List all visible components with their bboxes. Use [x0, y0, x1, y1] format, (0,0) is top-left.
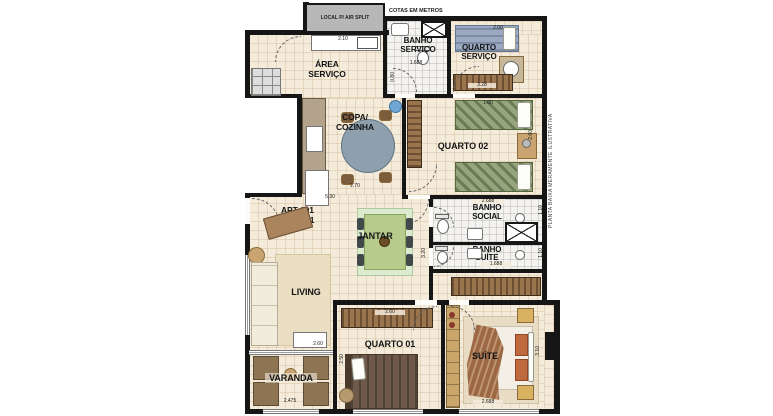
dim-label: 2.70: [340, 184, 370, 189]
shaft-box: [505, 222, 538, 243]
wall: [542, 16, 547, 304]
dim-label: 2.60: [303, 342, 333, 347]
pedestal-sink: [515, 250, 525, 260]
dim-label: 2.688: [473, 400, 503, 405]
door-gap: [415, 300, 437, 305]
wall: [429, 269, 547, 273]
air-split-box: LOCAL P/ AIR SPLIT: [305, 3, 385, 33]
suite-cushion: [515, 334, 528, 356]
dim-label: 1.688: [401, 61, 431, 66]
nightstand: [517, 308, 534, 323]
pouf: [339, 388, 354, 403]
wall: [385, 16, 547, 21]
door-gap: [429, 248, 433, 266]
washer: [357, 37, 378, 49]
bed-pillow: [517, 164, 531, 190]
room-label-quarto01: QUARTO 01: [350, 339, 430, 349]
dim-label: 3.10: [536, 346, 541, 356]
dim-label: 1.10: [539, 205, 544, 215]
nightstand: [517, 385, 534, 400]
bed-pillow: [351, 357, 366, 380]
window-living-varanda: [249, 350, 333, 355]
cooktop: [306, 126, 323, 152]
bed-pillow: [517, 102, 531, 128]
wall: [441, 300, 445, 410]
window: [459, 409, 539, 414]
dim-label: 1.00: [473, 101, 503, 106]
room-label-suite: SUÍTE: [460, 351, 510, 361]
chair: [357, 254, 364, 266]
dim-label: 1.688: [481, 262, 511, 267]
chair: [379, 172, 392, 183]
air-split-label: LOCAL P/ AIR SPLIT: [321, 15, 370, 21]
dim-label: 2.475: [275, 399, 305, 404]
room-label-living: LIVING: [281, 287, 331, 297]
chair: [406, 254, 413, 266]
room-label-quarto02: QUARTO 02: [423, 141, 503, 151]
lamp: [522, 139, 531, 148]
varanda-chair: [303, 382, 329, 406]
sink: [391, 23, 409, 36]
cotas-note: COTAS EM METROS: [389, 8, 443, 14]
room-label-area-servico: ÁREA SERVIÇO: [297, 60, 357, 79]
room-label-varanda: VARANDA: [265, 373, 317, 383]
dim-label: 2.60: [529, 130, 534, 140]
chair: [406, 236, 413, 248]
suite-cushion: [515, 359, 528, 381]
bed-pillow: [528, 332, 534, 382]
sofa: [251, 262, 278, 346]
water-cooler: [389, 100, 402, 113]
dim-label: 2.60: [375, 310, 405, 315]
dim-label: 2.50: [340, 354, 345, 364]
door-gap: [395, 94, 415, 98]
dim-label: 3.20: [422, 248, 427, 258]
laundry-tank: [251, 68, 281, 96]
room-label-quarto-servico: QUARTO SERVIÇO: [452, 44, 506, 62]
wall: [447, 16, 451, 98]
floor-plan: LOCAL P/ AIR SPLIT COTAS EM METROS 2.10 …: [245, 2, 560, 414]
sink: [467, 248, 482, 259]
sink: [467, 228, 483, 240]
chair: [357, 218, 364, 230]
floor-plan-image: LOCAL P/ AIR SPLIT COTAS EM METROS 2.10 …: [0, 0, 773, 416]
room-label-banho-social: BANHO SOCIAL: [457, 204, 517, 222]
door-gap: [429, 207, 433, 227]
window: [245, 255, 250, 335]
dim-label: 2.10: [329, 37, 357, 42]
dim-label: 5.30: [315, 195, 345, 200]
dim-label: 2.00: [483, 26, 513, 31]
dim-label: 1.10: [539, 248, 544, 258]
wall: [545, 332, 560, 360]
room-label-banho-suite: BANHO SUÍTE: [457, 246, 517, 263]
side-note: PLANTA BAIXA MERAMENTE ILUSTRATIVA: [548, 98, 554, 228]
room-label-jantar: JANTAR: [343, 231, 407, 241]
room-label-copa: COPA/ COZINHA: [325, 113, 385, 132]
door-gap-entry: [245, 198, 250, 224]
wall: [245, 30, 250, 98]
suite-closet-wardrobe: [451, 277, 541, 296]
window: [353, 409, 423, 414]
fridge: [305, 170, 329, 206]
window: [263, 409, 319, 414]
room-label-banho-servico: BANHO SERVIÇO: [387, 37, 449, 55]
wardrobe: [407, 100, 422, 168]
wall: [333, 300, 337, 410]
door-gap: [453, 94, 475, 98]
chair: [406, 218, 413, 230]
wall: [245, 193, 302, 197]
wall: [402, 94, 406, 199]
